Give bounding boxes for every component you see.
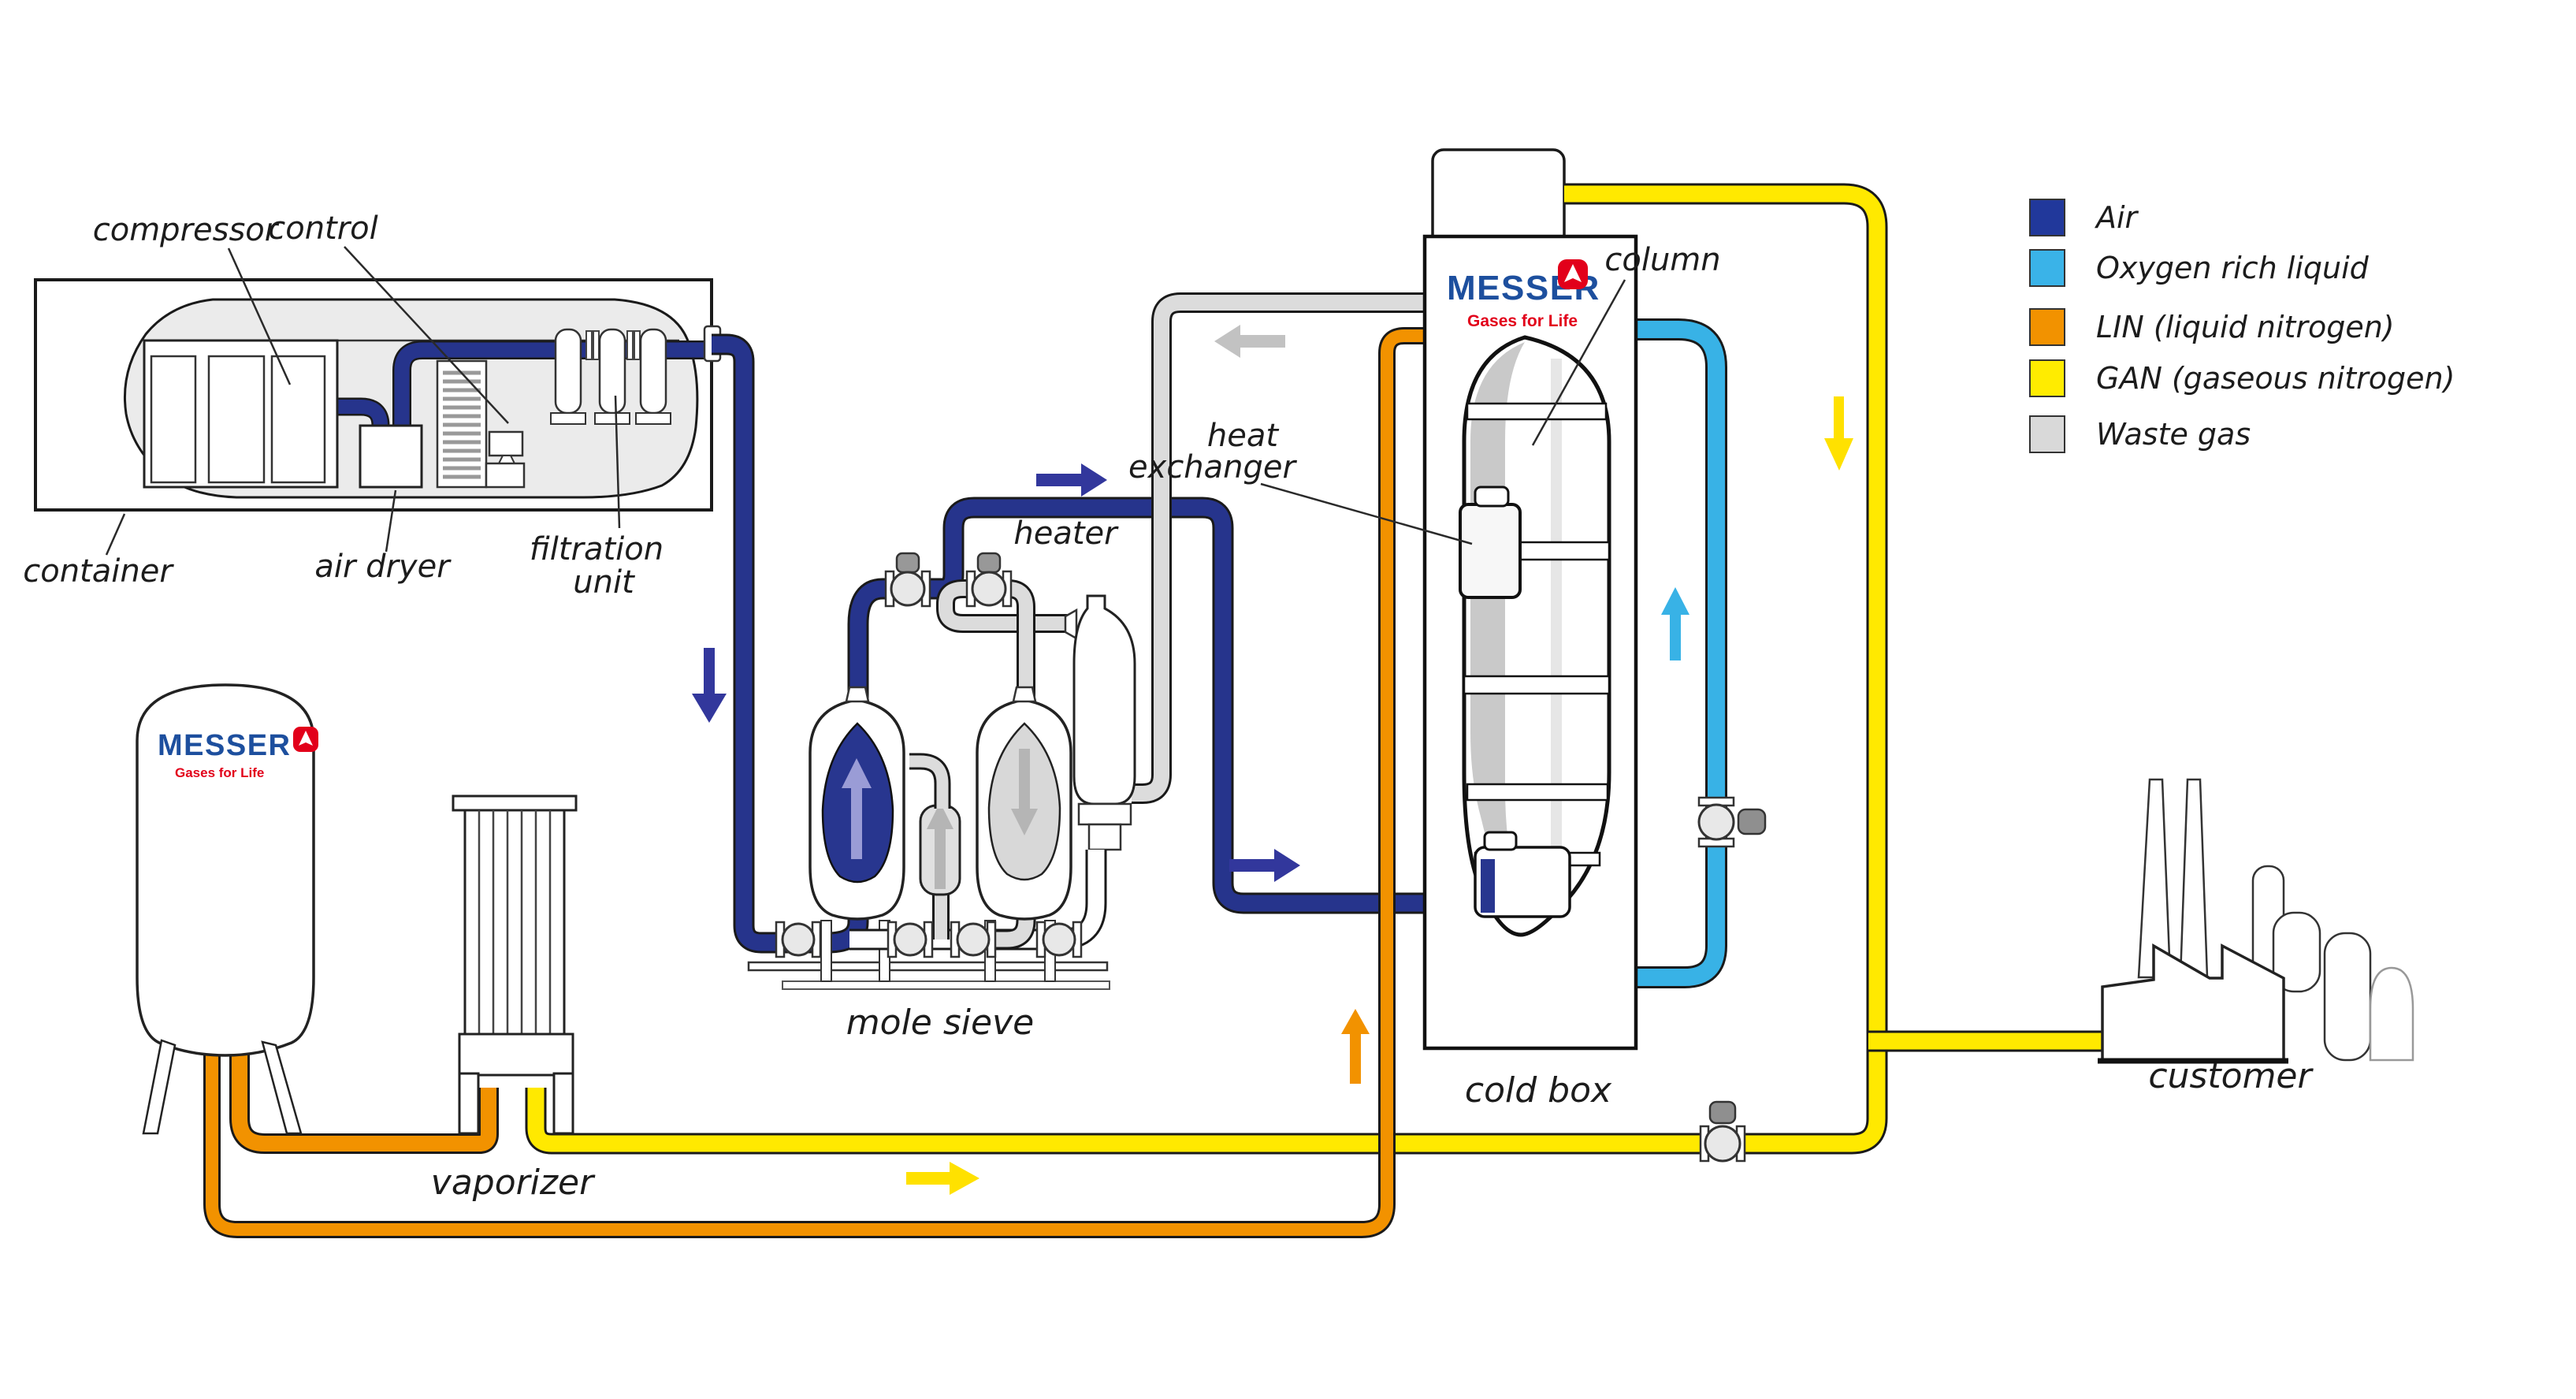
label-filtration-line1: filtration [530,531,664,567]
tank-brand-wordmark: MESSER [158,729,291,762]
vaporizer-top-plate [453,796,576,810]
process-diagram: MESSER Gases for Life [0,0,2576,1399]
valve-handle-icon [1738,809,1765,834]
valve-ball [1043,924,1075,955]
heat-exchanger-cap [1475,487,1508,506]
air-dryer-unit [360,426,422,487]
filtration-connector-1 [586,331,592,359]
valve-manifold-1 [776,922,820,957]
label-column: column [1604,242,1720,278]
factory-chimney-2 [2180,779,2207,977]
legend-swatch-waste [2030,416,2065,452]
valve-ball [782,924,814,955]
filtration-base-2 [595,413,630,424]
heat-exchanger-box [1460,504,1520,597]
legend-label-oxygen: Oxygen rich liquid [2096,251,2370,285]
column-tray-3 [1464,676,1609,694]
flow-arrow-lin-up-icon [1341,1009,1370,1084]
valve-handle-icon [978,553,1000,572]
column-tray-1 [1467,404,1606,419]
legend-swatch-air [2030,199,2065,236]
coldbox-brand-tagline: Gases for Life [1467,312,1578,330]
leader-air-dryer [386,490,396,552]
legend-swatch-gan [2030,360,2065,396]
coldbox-brand: MESSER Gases for Life [1447,259,1600,330]
factory-tank [2325,933,2370,1060]
flow-arrow-air-right-top-icon [1036,463,1107,497]
valve-ball [891,572,924,605]
customer-factory [2098,779,2413,1061]
filtration-connector-3 [627,331,633,359]
skid-rail-lower [782,981,1110,989]
mole-sieve-unit [749,303,1429,989]
vaporizer-leg-right [554,1073,573,1133]
compressor-panel-2 [209,356,264,482]
label-vaporizer: vaporizer [431,1163,596,1203]
compressor-panel-3 [272,356,325,482]
label-cold-box: cold box [1465,1070,1612,1111]
molesieve-vessel-left-neck [846,687,868,701]
tank-brand-tagline: Gases for Life [175,765,264,780]
flow-arrow-gan-right-icon [906,1162,979,1195]
legend-label-air: Air [2094,200,2139,235]
tank-leg-right [262,1042,301,1133]
filtration-cylinder-1 [556,329,581,413]
filtration-cylinder-3 [641,329,666,413]
messer-logo-icon [1558,259,1588,289]
label-air-dryer: air dryer [314,549,452,585]
valve-oxygen-line [1699,798,1765,846]
valve-ball [1705,1126,1740,1161]
skid-post-1 [821,921,831,981]
legend-label-lin: LIN (liquid nitrogen) [2096,310,2395,344]
heater-vessel [1074,596,1135,804]
heater-inlet-nozzle [1065,610,1076,638]
valve-molesieve-top-left [886,553,930,606]
legend-swatch-lin [2030,309,2065,345]
legend-swatch-oxygen [2030,250,2065,286]
vaporizer-base [459,1034,573,1075]
valve-manifold-3 [951,922,995,957]
column-tray-4 [1467,784,1608,800]
label-heat-exchanger-line2: exchanger [1128,449,1297,486]
factory-dome [2370,968,2413,1060]
pipe-gan-vaporizer-line [536,1041,1877,1144]
molesieve-vessel-right-neck [1013,687,1035,701]
label-compressor: compressor [93,212,280,248]
label-mole-sieve: mole sieve [846,1003,1034,1043]
vaporizer-leg-left [459,1073,478,1133]
filtration-base-1 [551,413,585,424]
valve-manifold-4 [1037,922,1081,957]
flow-arrow-gan-down-icon [1824,396,1853,471]
label-heater: heater [1013,515,1119,552]
flow-arrow-oxygen-up-icon [1661,587,1689,660]
flow-arrow-air-right-bottom-icon [1229,849,1300,882]
valve-molesieve-top-right [967,553,1011,606]
cold-box-unit: MESSER Gases for Life [1425,150,2104,1161]
valve-ball [972,572,1005,605]
valve-ball [1699,805,1734,839]
flow-arrow-waste-left-icon [1214,325,1285,358]
valve-gan-line [1701,1102,1745,1161]
filtration-connector-4 [634,331,640,359]
heater-base-upper [1079,804,1131,824]
leader-container [106,514,125,555]
pipe-air-feed-stub [1481,859,1495,913]
legend: Air Oxygen rich liquid LIN (liquid nitro… [2030,199,2455,452]
filtration-cylinder-2 [600,329,625,413]
label-container: container [23,553,174,590]
legend-label-gan: GAN (gaseous nitrogen) [2096,361,2455,396]
valve-handle-icon [1710,1102,1735,1123]
legend-label-waste: Waste gas [2096,417,2251,452]
label-filtration-line2: unit [573,564,635,601]
heater-base-lower [1089,824,1121,850]
valve-ball [894,924,926,955]
filtration-connector-2 [593,331,599,359]
messer-logo-icon [293,727,318,752]
label-customer: customer [2148,1056,2314,1096]
pipe-gan-vaporizer-line-core [536,1041,1877,1144]
tank-leg-left [143,1040,175,1133]
label-control: control [268,210,378,247]
filtration-base-3 [636,413,671,424]
control-desk [486,463,524,487]
control-monitor [489,432,522,456]
valve-manifold-2 [888,922,932,957]
flow-arrow-air-down-icon [692,648,727,723]
valve-ball [957,924,989,955]
compressor-panel-1 [151,356,195,482]
column-sump-cap [1485,832,1516,850]
valve-handle-icon [897,553,919,572]
